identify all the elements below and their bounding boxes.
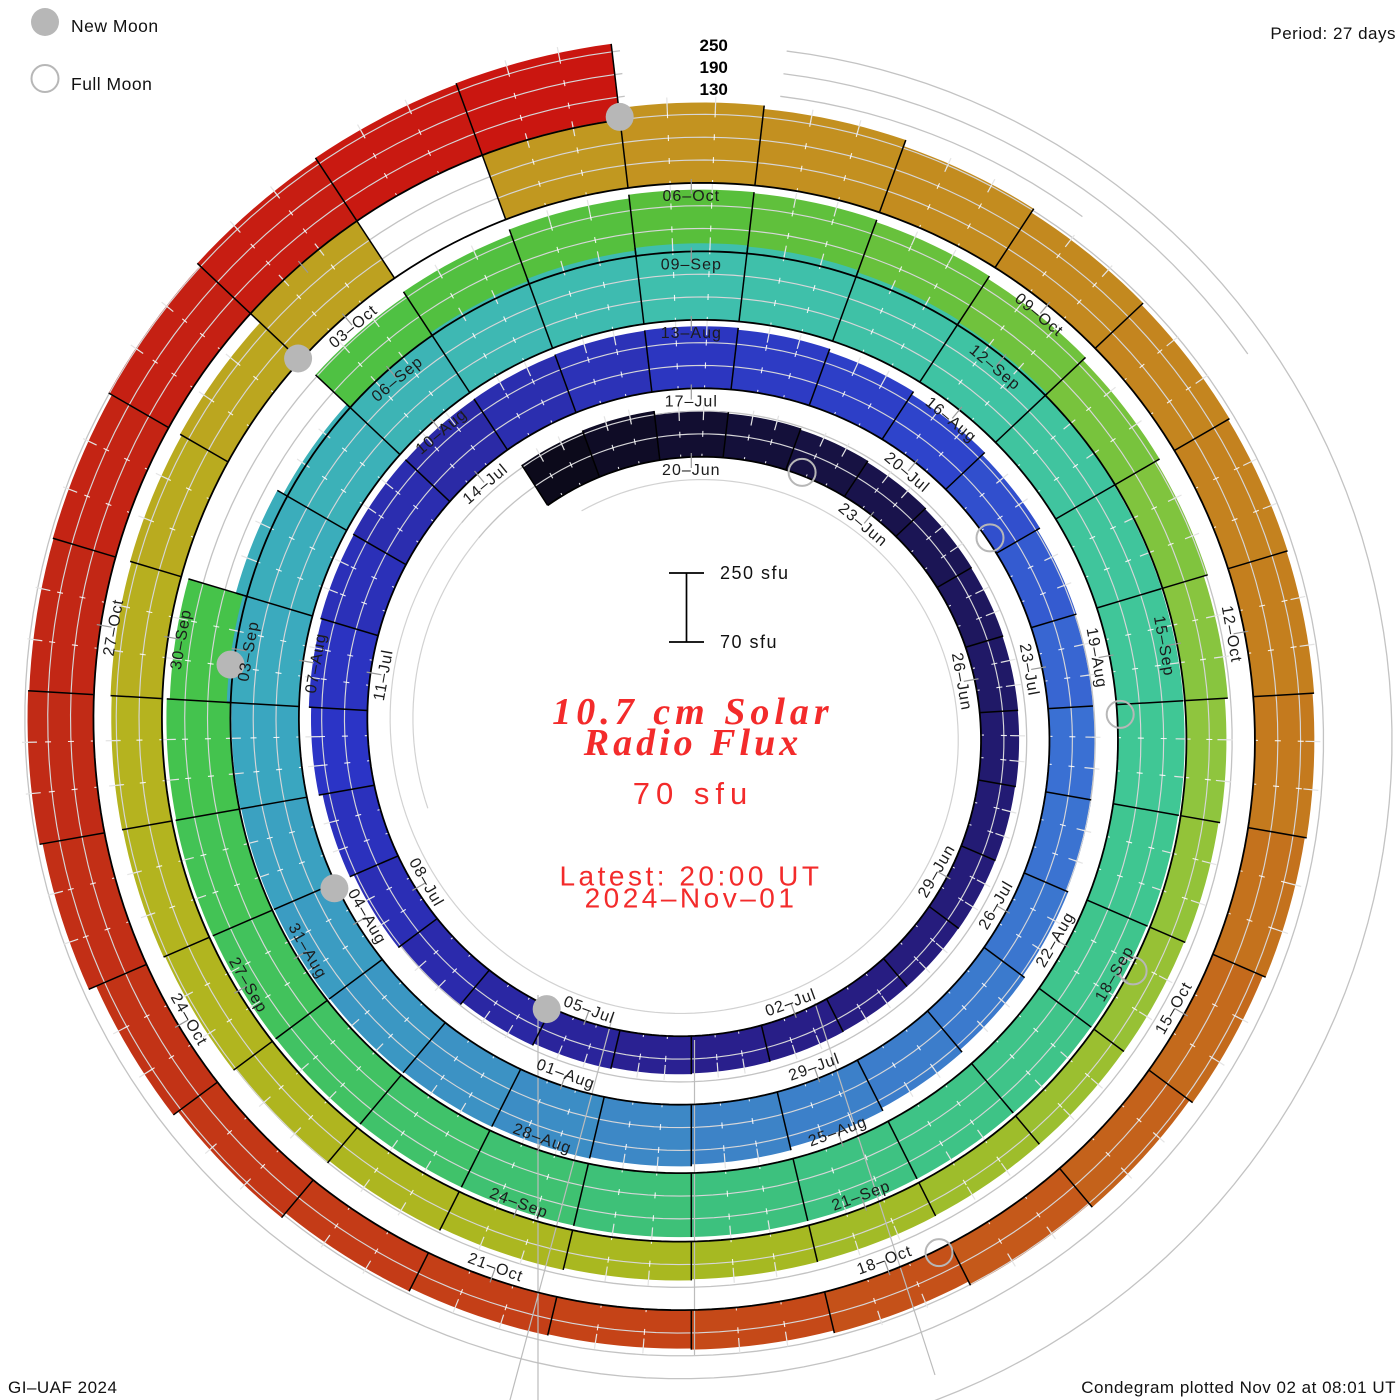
svg-text:190: 190 — [700, 58, 728, 77]
svg-text:250: 250 — [700, 36, 728, 55]
svg-text:Condegram plotted Nov 02 at 08: Condegram plotted Nov 02 at 08:01 UT — [1081, 1378, 1396, 1397]
svg-text:New Moon: New Moon — [71, 16, 159, 36]
svg-text:250 sfu: 250 sfu — [720, 563, 790, 583]
svg-text:20–Jun: 20–Jun — [662, 462, 721, 479]
svg-text:13–Aug: 13–Aug — [661, 325, 722, 342]
svg-text:70 sfu: 70 sfu — [633, 776, 753, 811]
svg-text:GI–UAF 2024: GI–UAF 2024 — [8, 1378, 117, 1397]
svg-text:Radio Flux: Radio Flux — [583, 722, 802, 764]
svg-text:Full Moon: Full Moon — [71, 74, 152, 94]
svg-text:06–Oct: 06–Oct — [663, 188, 721, 205]
svg-text:17–Jul: 17–Jul — [665, 394, 718, 411]
svg-text:130: 130 — [700, 80, 728, 99]
svg-text:70 sfu: 70 sfu — [720, 632, 778, 652]
svg-text:Period: 27 days: Period: 27 days — [1270, 24, 1396, 43]
svg-text:2024–Nov–01: 2024–Nov–01 — [585, 883, 798, 914]
svg-text:09–Sep: 09–Sep — [661, 257, 722, 274]
